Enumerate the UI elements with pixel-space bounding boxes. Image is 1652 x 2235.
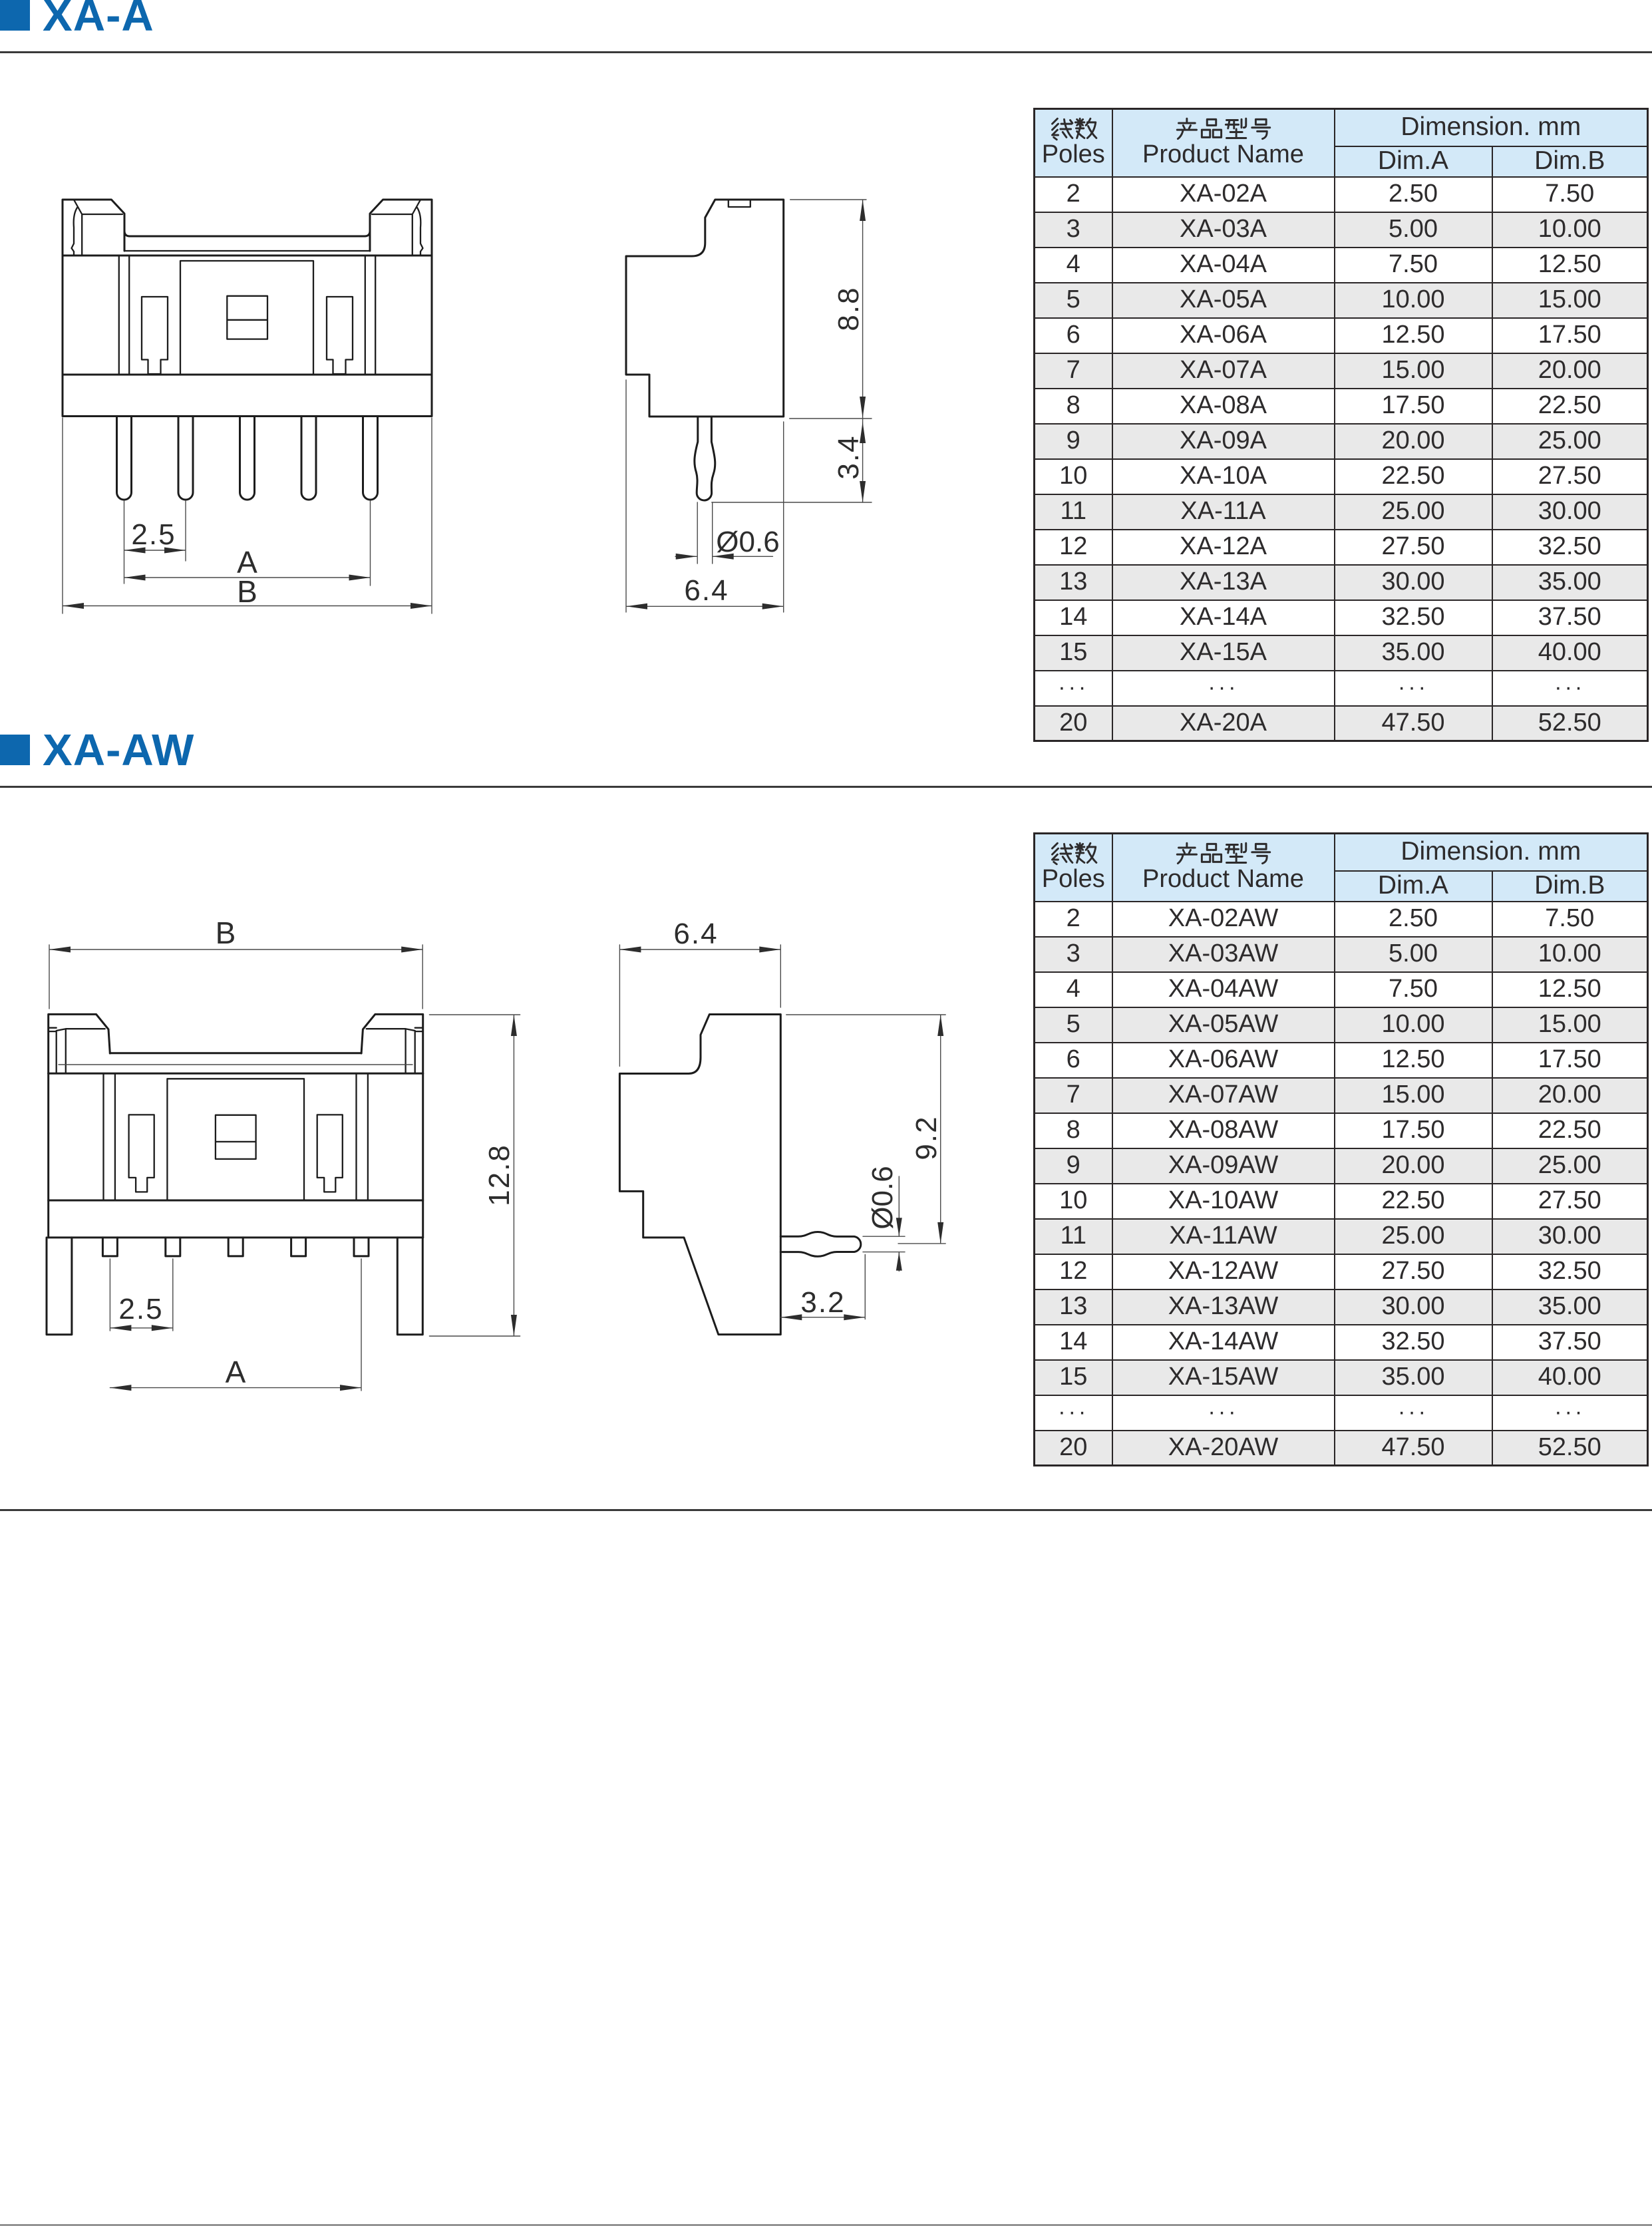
svg-text:3.2: 3.2 — [800, 1286, 845, 1319]
svg-text:B: B — [216, 916, 236, 950]
svg-text:2.5: 2.5 — [131, 518, 176, 551]
svg-text:12.8: 12.8 — [483, 1144, 516, 1206]
svg-text:6.4: 6.4 — [673, 918, 718, 950]
svg-text:3.4: 3.4 — [832, 434, 865, 479]
svg-text:2.5: 2.5 — [118, 1293, 163, 1325]
svg-text:Ø0.6: Ø0.6 — [716, 526, 779, 558]
svg-text:9.2: 9.2 — [910, 1115, 943, 1160]
svg-text:8.8: 8.8 — [832, 286, 865, 331]
svg-text:Ø0.6: Ø0.6 — [866, 1166, 899, 1229]
svg-text:A: A — [226, 1355, 246, 1389]
svg-text:B: B — [237, 574, 257, 609]
svg-text:6.4: 6.4 — [684, 574, 729, 607]
